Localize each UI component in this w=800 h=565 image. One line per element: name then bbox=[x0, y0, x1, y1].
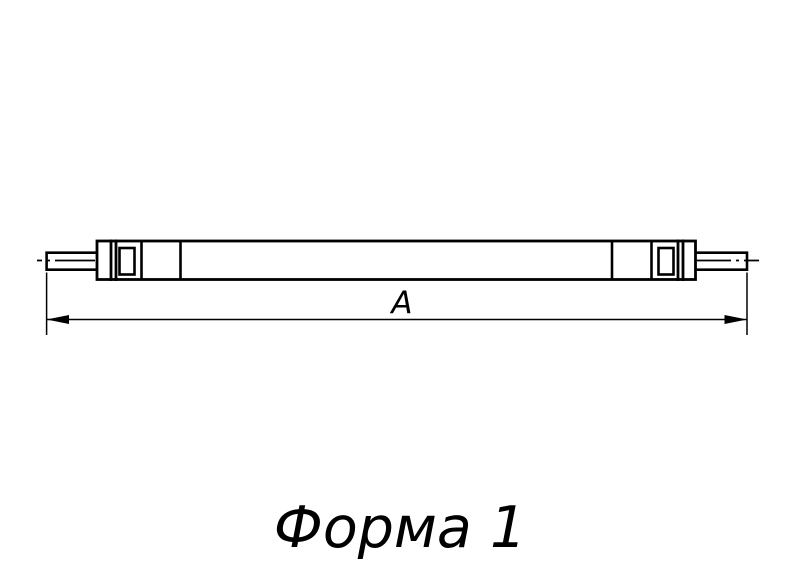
body-tube bbox=[97, 241, 696, 280]
dimension-A: A bbox=[47, 273, 747, 336]
drawing-canvas: A Форма 1 bbox=[0, 0, 800, 565]
arrowhead-right-icon bbox=[725, 315, 748, 324]
dimension-label: A bbox=[389, 286, 412, 322]
arrowhead-left-icon bbox=[47, 315, 69, 324]
tie-rod-technical-drawing: A bbox=[0, 0, 800, 565]
figure-caption: Форма 1 bbox=[0, 500, 800, 557]
